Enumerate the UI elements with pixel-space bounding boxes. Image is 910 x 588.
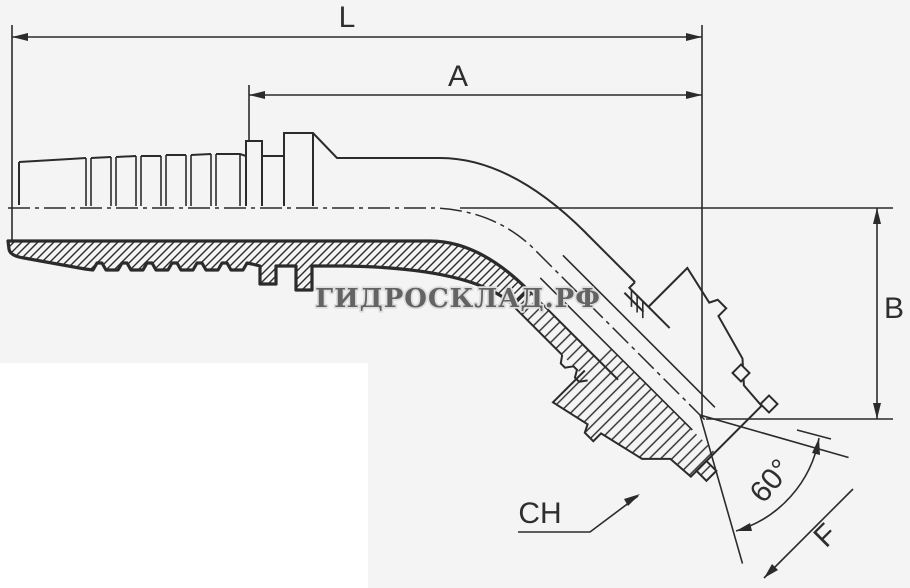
label-A: A bbox=[448, 60, 468, 93]
label-L: L bbox=[339, 1, 356, 34]
label-B: B bbox=[884, 292, 904, 325]
technical-drawing: L A B 60° F CH ГИДРОСКЛАД.РФ bbox=[0, 0, 910, 588]
label-CH: CH bbox=[518, 497, 561, 530]
watermark-text: ГИДРОСКЛАД.РФ bbox=[315, 284, 601, 314]
white-panel bbox=[0, 363, 368, 588]
drawing-stage: L A B 60° F CH ГИДРОСКЛАД.РФ bbox=[0, 0, 910, 588]
